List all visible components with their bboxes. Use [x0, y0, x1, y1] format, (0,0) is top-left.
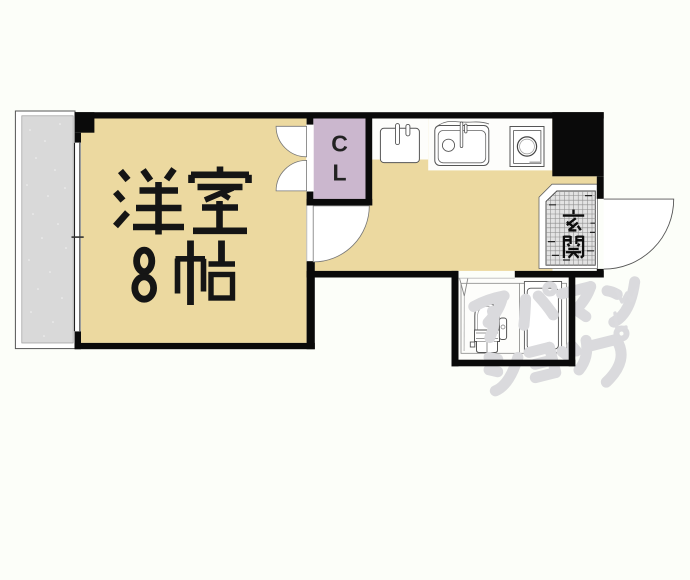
svg-text:L: L: [332, 160, 346, 186]
svg-text:C: C: [331, 131, 348, 157]
